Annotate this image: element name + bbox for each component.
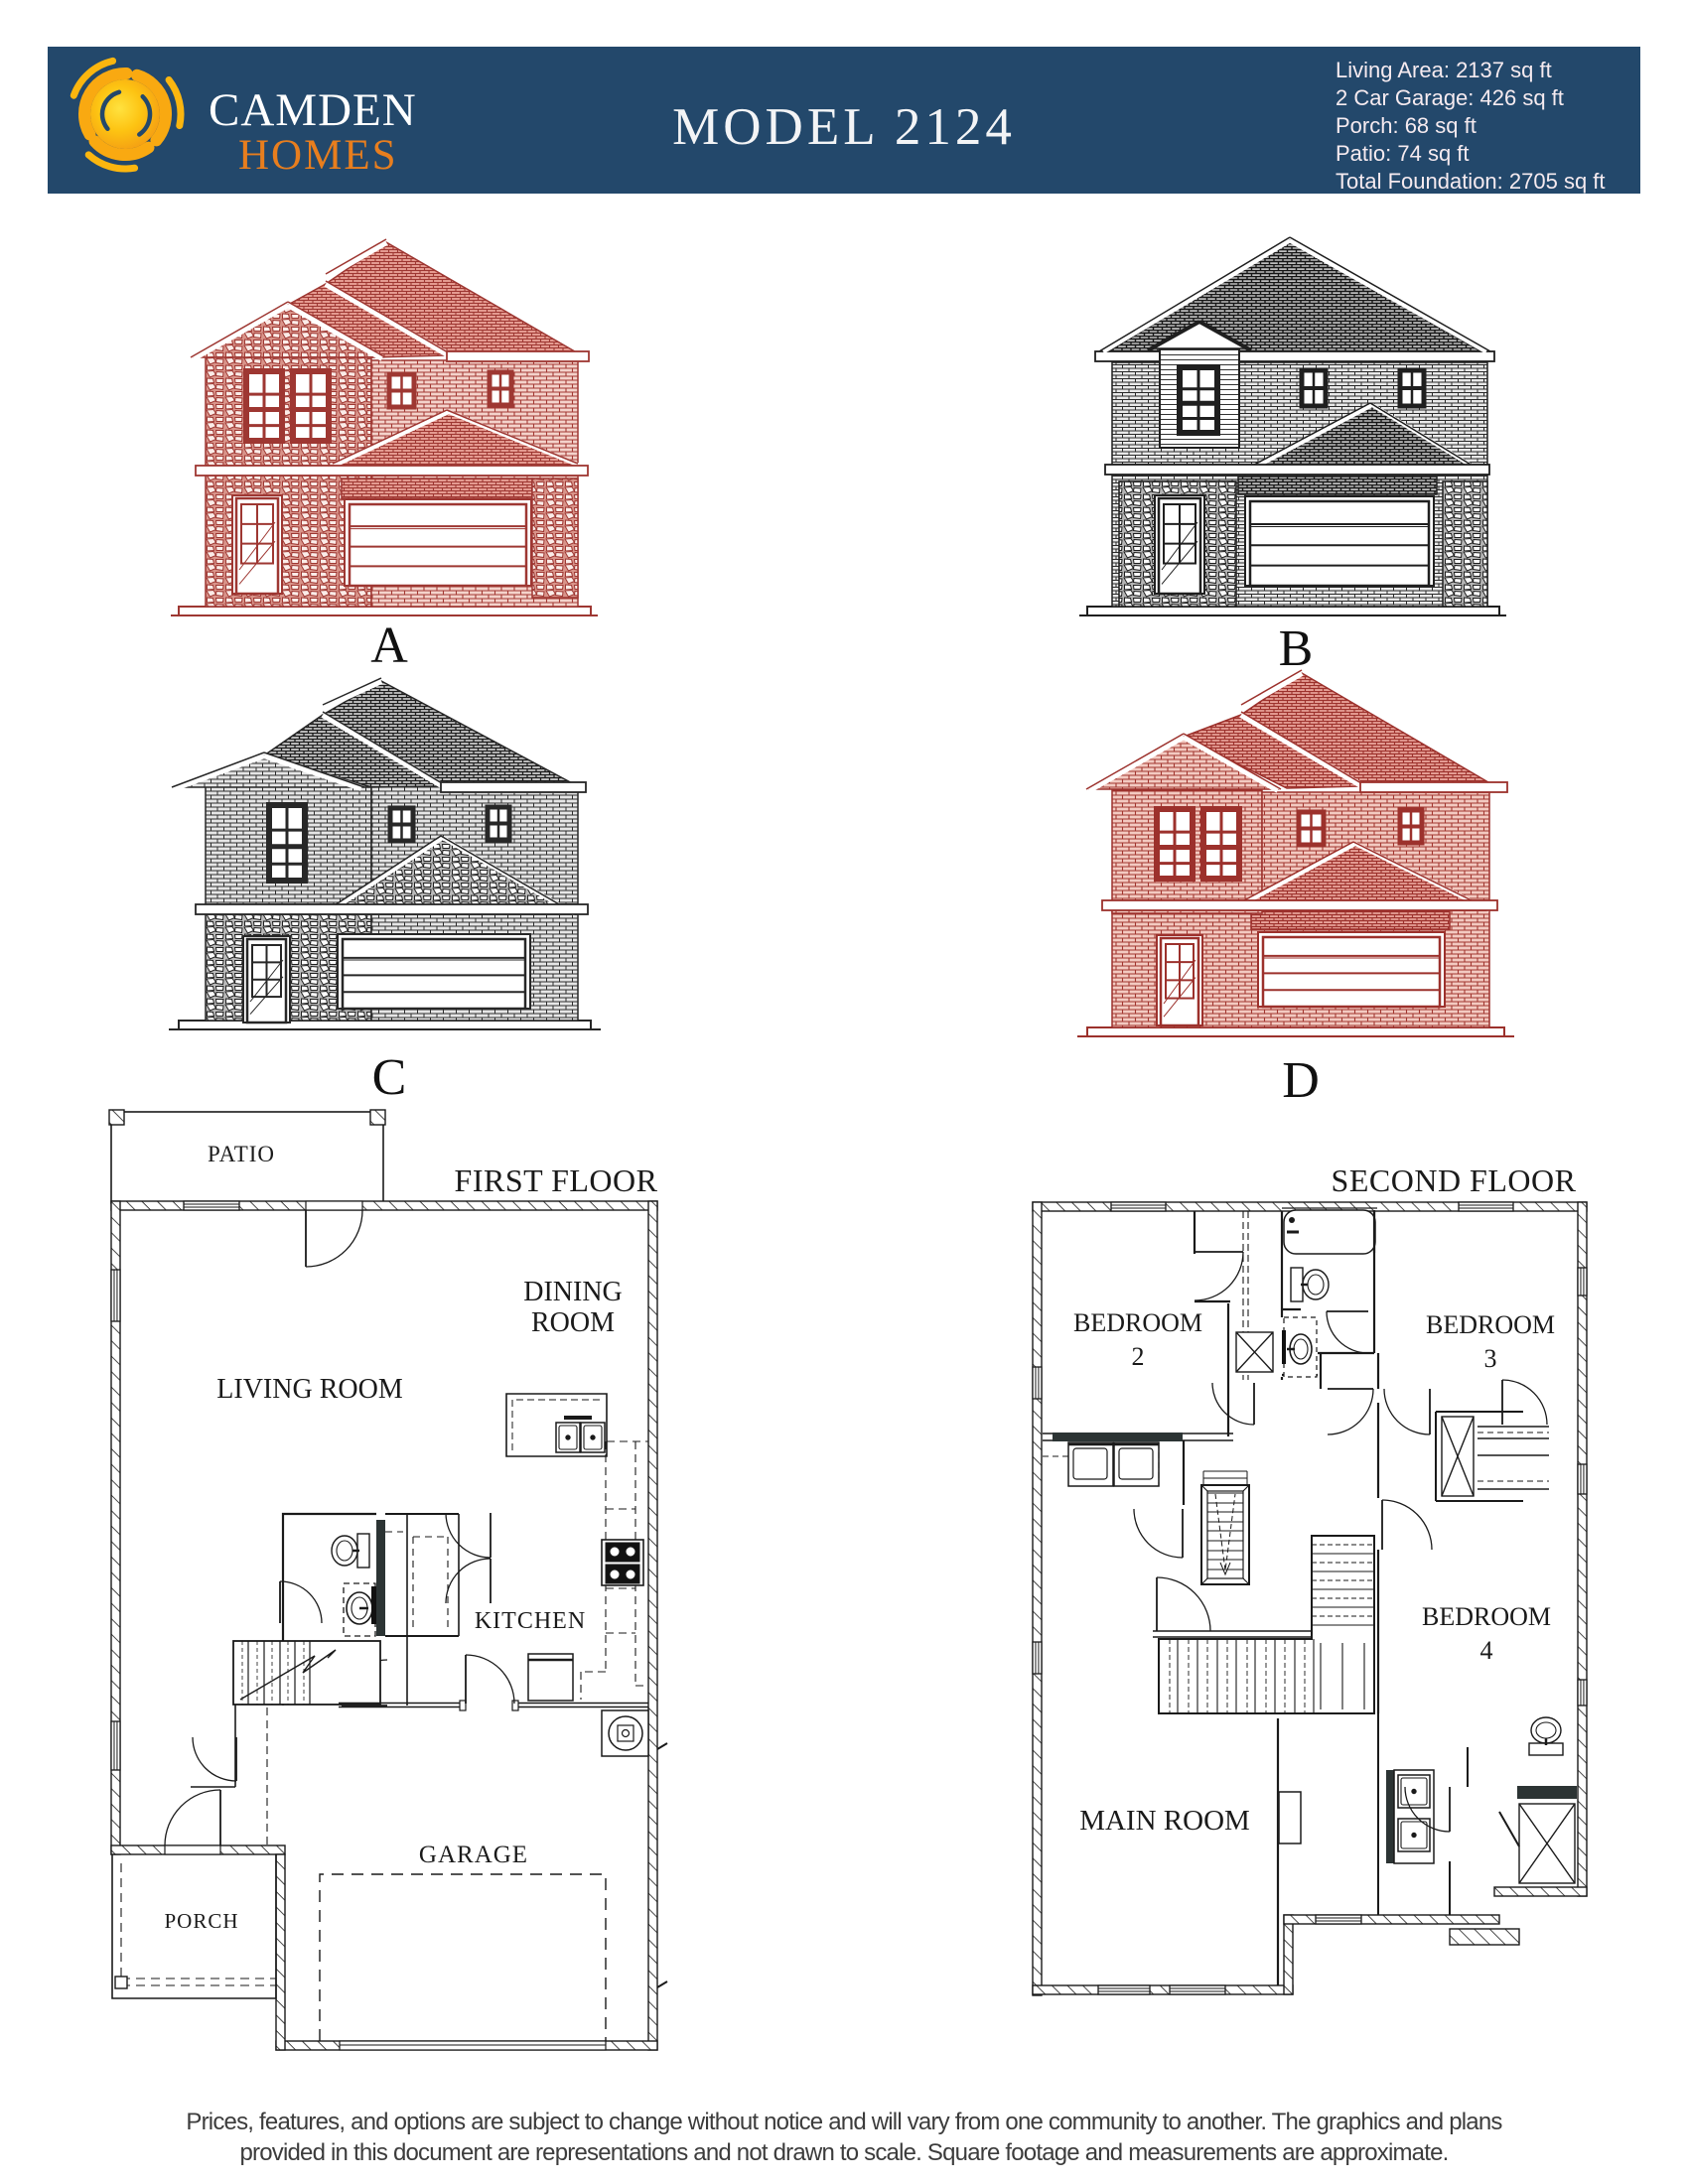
svg-text:3: 3: [1484, 1344, 1497, 1373]
svg-text:PORCH: PORCH: [164, 1909, 238, 1933]
svg-text:FIRST FLOOR: FIRST FLOOR: [455, 1162, 658, 1198]
svg-text:LIVING ROOM: LIVING ROOM: [216, 1374, 403, 1405]
svg-text:CAMDEN: CAMDEN: [209, 84, 417, 136]
svg-text:MAIN ROOM: MAIN ROOM: [1079, 1805, 1250, 1837]
svg-text:BEDROOM: BEDROOM: [1073, 1308, 1202, 1337]
svg-text:DINING: DINING: [523, 1277, 623, 1307]
svg-text:HOMES: HOMES: [238, 132, 398, 179]
svg-text:4: 4: [1480, 1636, 1493, 1665]
svg-text:GARAGE: GARAGE: [419, 1842, 528, 1868]
svg-text:ROOM: ROOM: [531, 1307, 615, 1338]
svg-text:2: 2: [1132, 1342, 1145, 1371]
svg-text:BEDROOM: BEDROOM: [1422, 1602, 1551, 1631]
svg-text:SECOND FLOOR: SECOND FLOOR: [1332, 1162, 1577, 1198]
svg-text:BEDROOM: BEDROOM: [1426, 1310, 1555, 1339]
svg-text:PATIO: PATIO: [208, 1142, 275, 1166]
svg-text:KITCHEN: KITCHEN: [475, 1608, 586, 1634]
